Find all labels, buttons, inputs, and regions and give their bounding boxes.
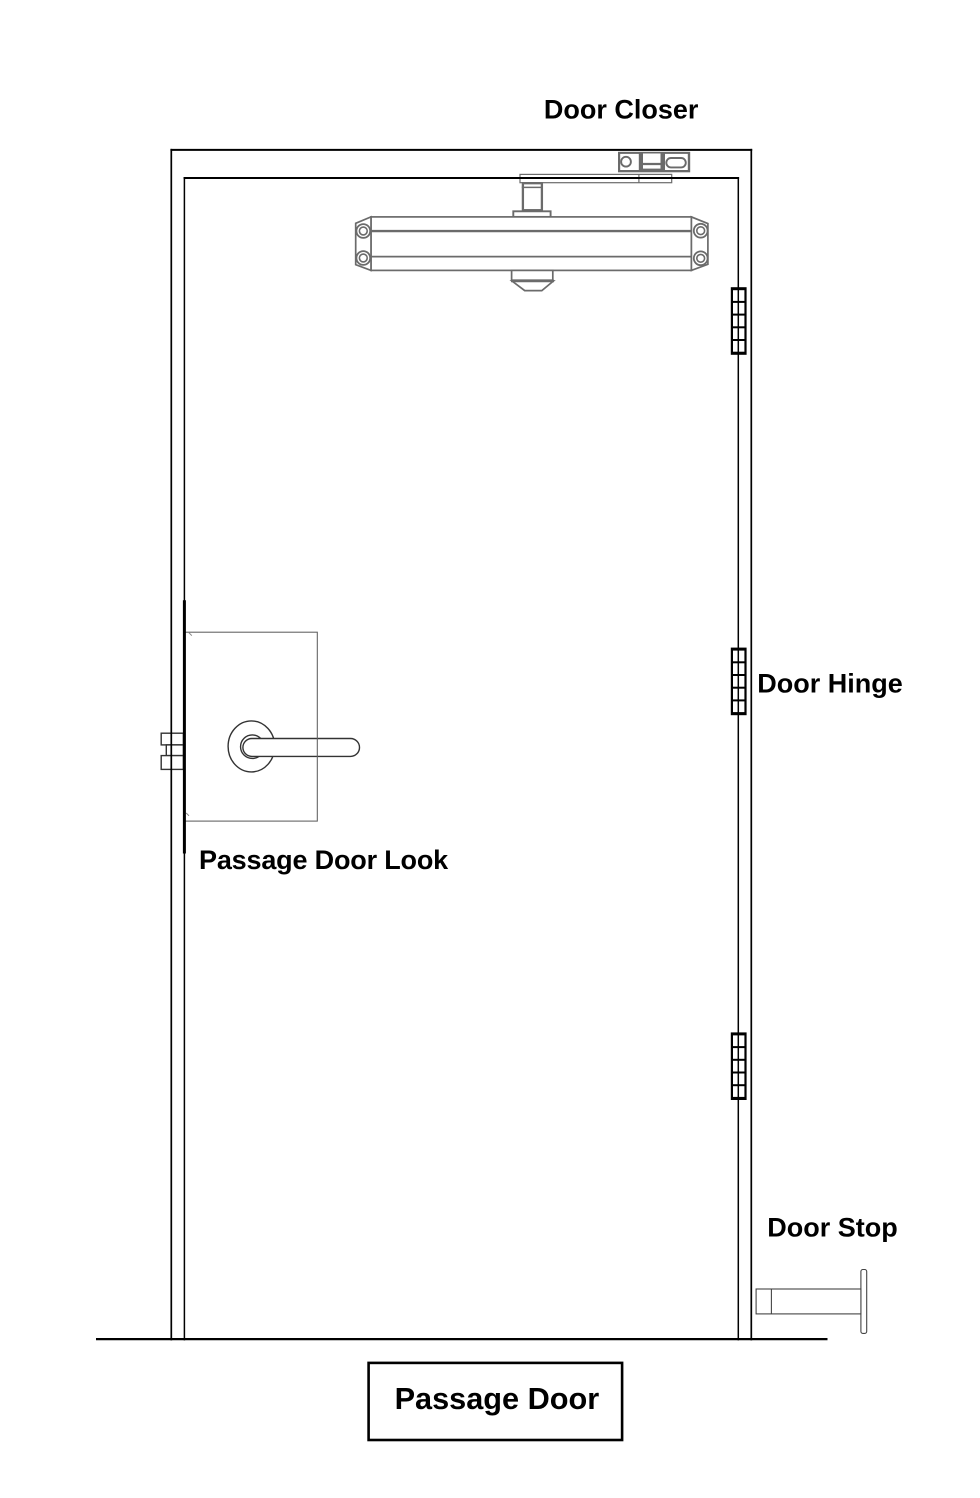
svg-text:Passage Door: Passage Door [395,1381,600,1416]
svg-text:Door Closer: Door Closer [544,95,699,125]
svg-text:Door Hinge: Door Hinge [757,669,903,699]
svg-text:Door Stop: Door Stop [767,1213,897,1243]
svg-text:Passage Door Look: Passage Door Look [199,845,449,875]
